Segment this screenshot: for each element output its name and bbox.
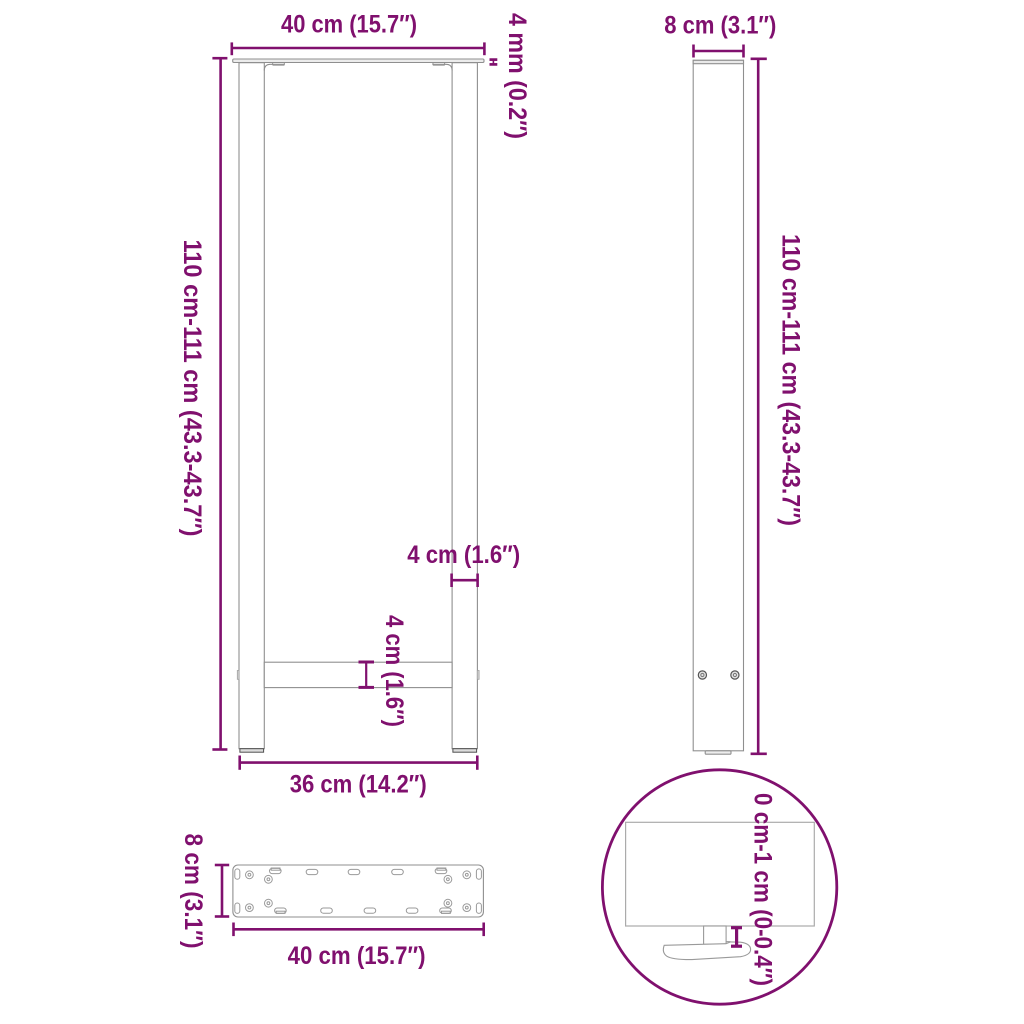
svg-text:40 cm (15.7″): 40 cm (15.7″)	[281, 10, 417, 38]
svg-text:8 cm (3.1″): 8 cm (3.1″)	[664, 12, 776, 40]
svg-text:36 cm (14.2″): 36 cm (14.2″)	[290, 770, 427, 798]
svg-text:4 mm (0.2″): 4 mm (0.2″)	[503, 13, 531, 139]
svg-text:8 cm (3.1″): 8 cm (3.1″)	[179, 834, 207, 949]
svg-text:4 cm (1.6″): 4 cm (1.6″)	[407, 541, 520, 569]
svg-text:110 cm-111 cm (43.3-43.7″): 110 cm-111 cm (43.3-43.7″)	[178, 240, 206, 537]
svg-text:110 cm-111 cm (43.3-43.7″): 110 cm-111 cm (43.3-43.7″)	[776, 234, 804, 526]
svg-text:40 cm (15.7″): 40 cm (15.7″)	[288, 942, 426, 970]
svg-text:4 cm (1.6″): 4 cm (1.6″)	[380, 615, 408, 727]
svg-text:0 cm-1 cm (0-0.4″): 0 cm-1 cm (0-0.4″)	[749, 793, 777, 986]
